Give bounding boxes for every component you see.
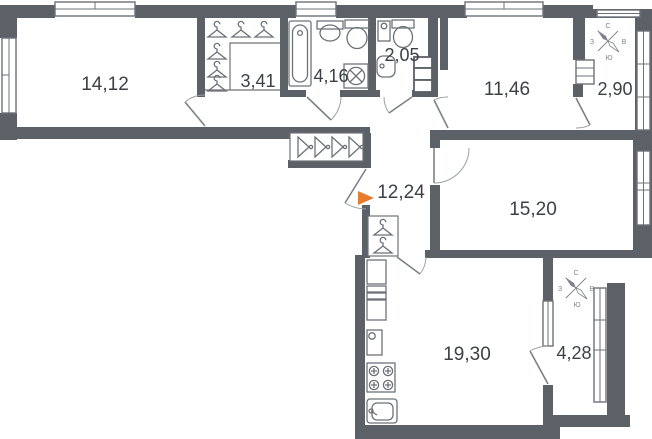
room-label: 12,24: [377, 182, 425, 203]
door-swing: [185, 95, 205, 126]
door-swing: [384, 97, 412, 113]
room-label: 2,90: [597, 79, 632, 99]
window: [576, 60, 594, 84]
compass-e-label: В: [590, 286, 595, 293]
window: [543, 301, 553, 346]
compass-n-label: С: [605, 23, 610, 30]
kitchen-counter: [367, 330, 382, 355]
window: [296, 2, 336, 16]
compass-e-label: В: [622, 39, 627, 46]
compass-north-balcony: С В Ю З: [590, 23, 627, 62]
room-label: 11,46: [484, 79, 530, 100]
compass-n-label: С: [573, 270, 578, 277]
compass-w-label: З: [558, 286, 562, 293]
room-label: 4,16: [313, 66, 348, 86]
kitchen-sink-icon: [367, 399, 397, 423]
door-swing: [307, 97, 341, 120]
window: [637, 31, 650, 130]
room-label: 15,20: [509, 199, 557, 220]
door-swing: [434, 97, 448, 128]
compass-w-label: З: [590, 39, 594, 46]
window: [597, 10, 640, 17]
window: [55, 2, 135, 16]
water-heater-icon: [378, 21, 390, 41]
floor-plan: С В Ю З С В Ю З 14,12 3,41 4,16 2,05 11,…: [0, 0, 652, 439]
entrance-arrow-icon: [358, 191, 374, 205]
compass-s-label: Ю: [605, 55, 612, 62]
room-label: 14,12: [81, 74, 129, 95]
window: [637, 151, 650, 225]
compass-s-label: Ю: [573, 302, 580, 309]
door-swing: [397, 257, 426, 274]
window: [2, 38, 16, 113]
door-swing: [345, 169, 366, 209]
window: [594, 288, 606, 402]
floor-plan-drawing: С В Ю З С В Ю З 14,12 3,41 4,16 2,05 11,…: [0, 0, 652, 439]
toilet-icon: [345, 20, 369, 49]
fridge-icon: [367, 260, 386, 320]
sink-icon: [317, 21, 343, 41]
door-swing: [576, 98, 590, 128]
door-swing: [530, 346, 548, 384]
small-wardrobe: [368, 216, 398, 256]
room-label: 3,41: [240, 71, 275, 91]
stove-icon: [367, 363, 395, 392]
toilet-icon: [392, 20, 414, 48]
bathtub-icon: [289, 21, 311, 86]
room-label: 19,30: [443, 344, 491, 365]
compass-south-balcony: С В Ю З: [558, 270, 595, 309]
door-swing: [434, 148, 469, 183]
room-label: 4,28: [556, 343, 591, 363]
room-label: 2,05: [384, 45, 419, 65]
hall-wardrobe: [290, 133, 364, 161]
window: [465, 2, 543, 16]
